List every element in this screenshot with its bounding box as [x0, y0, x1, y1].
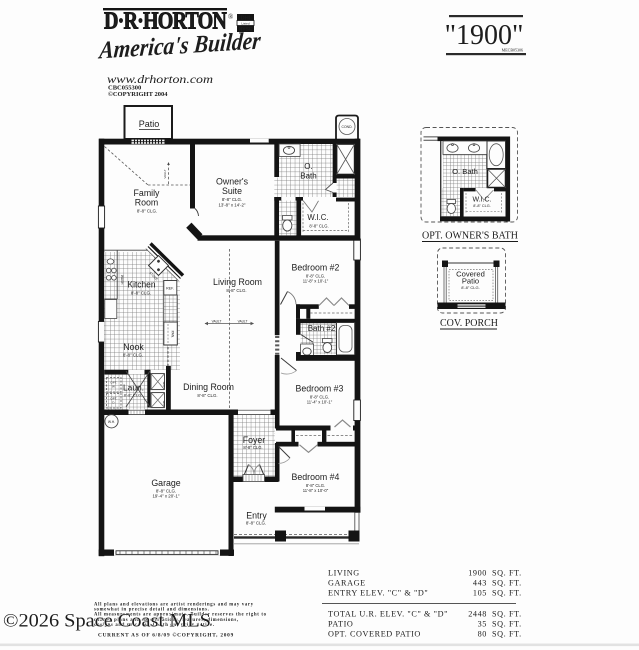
svg-text:©2026 Space Coast MLS: ©2026 Space Coast MLS [3, 611, 211, 632]
svg-text:WASH: WASH [120, 275, 124, 285]
svg-text:35: 35 [478, 620, 487, 629]
svg-text:D.: D. [112, 401, 115, 405]
svg-text:CURRENT AS OF 6/8/09 ©COPYR: CURRENT AS OF 6/8/09 ©COPYRIGHT, 2009 [98, 633, 234, 639]
svg-text:W/A: W/A [162, 401, 166, 407]
svg-text:W.: W. [112, 385, 116, 389]
svg-text:MECB05306: MECB05306 [502, 48, 523, 53]
svg-text:©COPYRIGHT 2004: ©COPYRIGHT 2004 [108, 91, 168, 98]
svg-text:SQ. FT.: SQ. FT. [492, 579, 522, 588]
svg-text:8'-8" CLG.: 8'-8" CLG. [124, 393, 142, 398]
svg-text:PATIO: PATIO [328, 620, 353, 629]
svg-text:Bedroom #3: Bedroom #3 [296, 384, 344, 394]
svg-text:SQ. FT.: SQ. FT. [492, 610, 522, 619]
svg-text:TOTAL U.R. ELEV. "C" & "D: TOTAL U.R. ELEV. "C" & "D" [328, 610, 448, 619]
svg-text:Garage: Garage [151, 478, 180, 488]
svg-text:8'-8" CLG.: 8'-8" CLG. [246, 521, 266, 526]
svg-text:Living Room: Living Room [213, 277, 262, 287]
svg-text:8'-8" CLG.: 8'-8" CLG. [197, 393, 217, 398]
svg-text:11'-8" x 10'-1": 11'-8" x 10'-1" [303, 279, 329, 284]
svg-text:80: 80 [478, 630, 487, 639]
svg-text:Laun.: Laun. [123, 383, 144, 393]
svg-text:19'-4" x 20'-1": 19'-4" x 20'-1" [152, 494, 179, 499]
svg-text:REF.: REF. [166, 287, 174, 291]
svg-text:Suite: Suite [222, 186, 242, 196]
svg-text:GARAGE: GARAGE [328, 579, 366, 588]
svg-text:11'-8" x 10'-0": 11'-8" x 10'-0" [303, 488, 329, 493]
svg-text:8'-8" CLG.: 8'-8" CLG. [123, 353, 143, 358]
svg-text:W.I.C.: W.I.C. [472, 197, 491, 204]
svg-text:8'-8" CLG.: 8'-8" CLG. [137, 209, 157, 214]
svg-text:Bath #2: Bath #2 [308, 324, 336, 333]
svg-text:VAULT: VAULT [163, 169, 167, 178]
svg-text:O. Bath: O. Bath [452, 167, 478, 176]
svg-text:8'-8" CLG.: 8'-8" CLG. [131, 291, 151, 296]
svg-text:8'-8" CLG.: 8'-8" CLG. [243, 445, 262, 450]
svg-text:"1900": "1900" [445, 20, 524, 51]
svg-text:VAULT: VAULT [238, 319, 248, 323]
svg-text:PAN.: PAN. [171, 331, 175, 339]
svg-text:8'-8" CLG.: 8'-8" CLG. [222, 197, 242, 202]
svg-text:W.I.C.: W.I.C. [307, 213, 328, 222]
svg-text:8'-8" CLG.: 8'-8" CLG. [473, 204, 490, 208]
svg-text:O.: O. [304, 162, 312, 171]
svg-text:SQ. FT.: SQ. FT. [492, 569, 522, 578]
svg-text:OPT. OWNER'S BATH: OPT. OWNER'S BATH [422, 231, 518, 242]
svg-text:W.H.: W.H. [108, 420, 115, 424]
svg-text:SQ. FT.: SQ. FT. [492, 630, 522, 639]
svg-text:Patio: Patio [139, 119, 160, 129]
svg-text:8'-8" CLG.: 8'-8" CLG. [461, 285, 479, 290]
svg-text:Entry: Entry [246, 511, 267, 521]
svg-text:Nook: Nook [123, 342, 144, 352]
svg-text:11'-4" x 10'-1": 11'-4" x 10'-1" [307, 400, 333, 405]
svg-text:OPT. COVERED PATIO: OPT. COVERED PATIO [328, 630, 421, 639]
svg-text:W/D: W/D [162, 382, 166, 389]
svg-text:COV. PORCH: COV. PORCH [440, 318, 498, 329]
svg-text:Owner's: Owner's [216, 177, 249, 187]
svg-text:ENTRY ELEV. "C" & "D": ENTRY ELEV. "C" & "D" [328, 589, 428, 598]
svg-text:Room: Room [135, 198, 158, 208]
svg-text:SQ. FT.: SQ. FT. [492, 620, 522, 629]
svg-text:Listed: Listed [241, 22, 250, 26]
svg-text:COND.: COND. [342, 125, 353, 129]
svg-text:2448: 2448 [468, 610, 487, 619]
svg-text:VAULT: VAULT [212, 319, 222, 323]
svg-text:105: 105 [473, 589, 487, 598]
svg-text:8'-8" CLG.: 8'-8" CLG. [226, 288, 246, 293]
svg-text:Bath: Bath [300, 172, 316, 181]
svg-text:Family: Family [134, 188, 161, 198]
svg-text:Bedroom #4: Bedroom #4 [292, 472, 340, 482]
svg-text:Foyer: Foyer [243, 435, 266, 445]
svg-text:8'-8" CLG.: 8'-8" CLG. [309, 224, 328, 229]
svg-text:443: 443 [473, 579, 487, 588]
svg-text:Kitchen: Kitchen [128, 280, 156, 290]
svg-text:1900: 1900 [468, 569, 487, 578]
svg-text:LIVING: LIVING [328, 569, 360, 578]
svg-text:13'-8" x 14'-2": 13'-8" x 14'-2" [218, 203, 245, 208]
svg-text:SQ. FT.: SQ. FT. [492, 589, 522, 598]
svg-text:Bedroom #2: Bedroom #2 [292, 263, 340, 273]
svg-text:Dining Room: Dining Room [183, 382, 234, 392]
svg-text:®: ® [228, 13, 234, 21]
